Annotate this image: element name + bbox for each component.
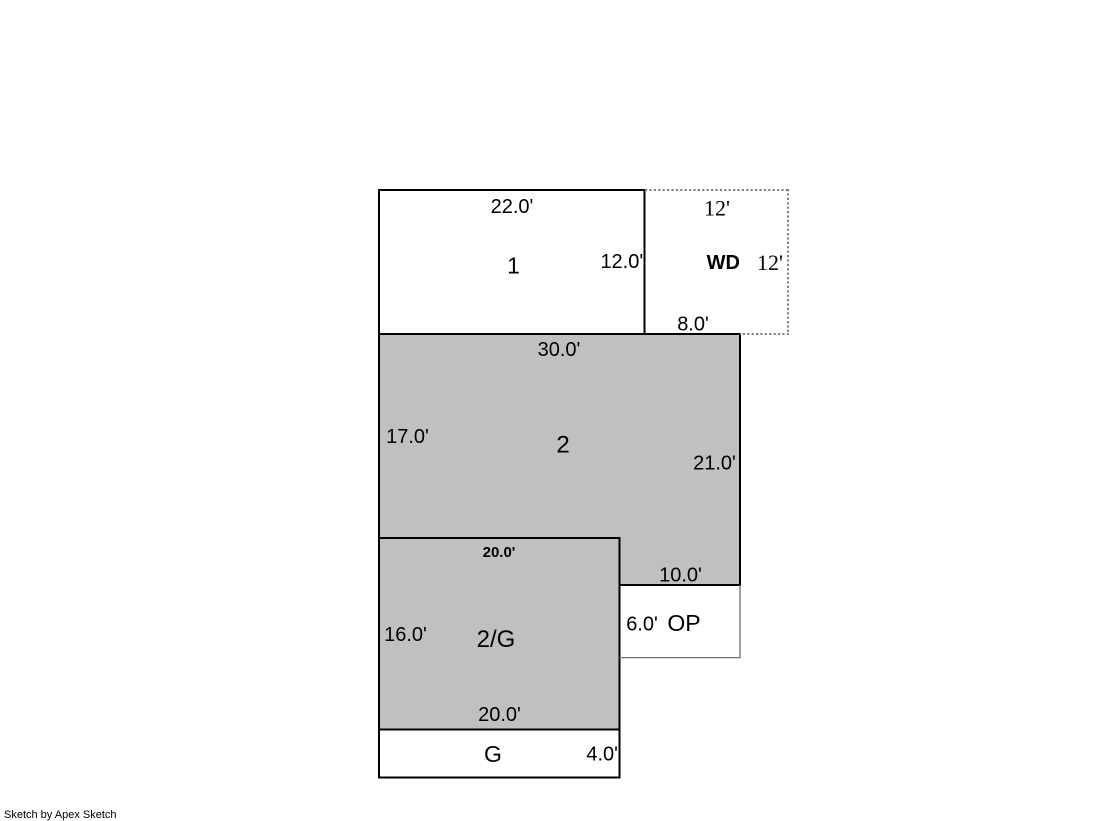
svg-text:8.0': 8.0'	[677, 314, 709, 336]
svg-text:21.0': 21.0'	[693, 453, 736, 475]
svg-text:WD: WD	[707, 252, 740, 274]
svg-text:12': 12'	[757, 250, 783, 275]
svg-text:4.0': 4.0'	[586, 744, 618, 766]
svg-text:10.0': 10.0'	[659, 565, 702, 587]
svg-text:20.0': 20.0'	[478, 704, 521, 726]
svg-text:12': 12'	[704, 196, 730, 221]
svg-text:17.0': 17.0'	[386, 426, 429, 448]
svg-text:30.0': 30.0'	[538, 339, 581, 361]
svg-text:Sketch by Apex Sketch: Sketch by Apex Sketch	[4, 809, 117, 821]
svg-text:20.0': 20.0'	[483, 544, 516, 561]
svg-text:12.0': 12.0'	[600, 251, 643, 273]
svg-text:16.0': 16.0'	[384, 624, 427, 646]
svg-text:2/G: 2/G	[477, 626, 516, 653]
svg-text:OP: OP	[667, 610, 700, 636]
svg-text:6.0': 6.0'	[626, 614, 658, 636]
svg-text:G: G	[484, 741, 502, 767]
svg-text:1: 1	[507, 253, 520, 279]
svg-text:2: 2	[556, 432, 569, 459]
svg-text:22.0': 22.0'	[491, 196, 534, 218]
